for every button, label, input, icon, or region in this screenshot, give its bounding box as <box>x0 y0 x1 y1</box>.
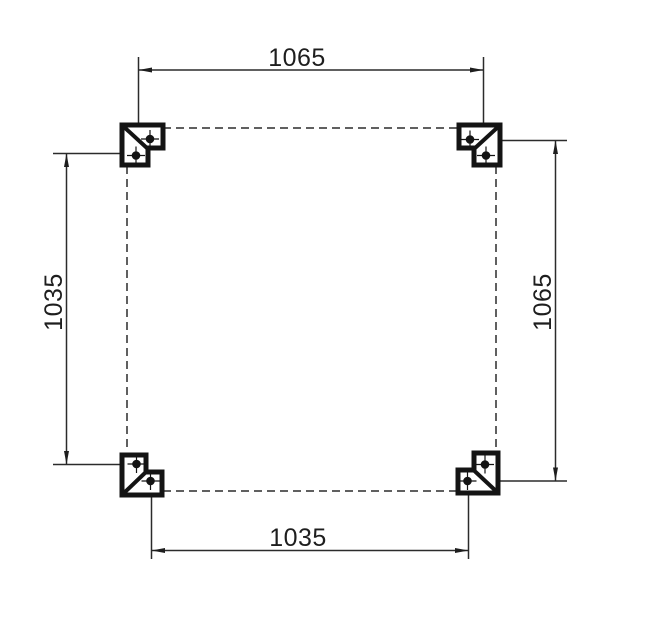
arrowhead-right <box>470 68 484 73</box>
corner-bracket-top-right <box>459 125 500 165</box>
technical-drawing-canvas: 1065 1035 1035 1065 <box>0 0 660 627</box>
arrowhead-right <box>455 548 469 553</box>
dimension-label-top: 1065 <box>268 44 326 72</box>
bolt-hole-icon <box>146 135 155 144</box>
arrowhead-bottom <box>64 451 69 465</box>
bolt-hole-icon <box>482 151 491 160</box>
dimension-top: 1065 <box>139 44 484 150</box>
dimension-plan-svg: 1065 1035 1035 1065 <box>0 0 660 627</box>
dimension-right: 1065 <box>480 141 567 482</box>
dimension-label-left: 1035 <box>40 273 68 331</box>
arrowhead-bottom <box>553 468 558 482</box>
frame-outline-dashed <box>127 128 496 491</box>
corner-bracket-top-left <box>122 125 163 165</box>
bolt-hole-icon <box>481 460 490 469</box>
arrowhead-left <box>152 548 166 553</box>
bolt-hole-icon <box>466 135 475 144</box>
dimension-label-right: 1065 <box>529 273 557 331</box>
dimension-left: 1035 <box>40 154 124 465</box>
bolt-hole-icon <box>146 477 155 486</box>
dimension-bottom: 1035 <box>152 493 469 559</box>
corner-bracket-bottom-right <box>458 453 498 493</box>
bolt-hole-icon <box>463 477 472 486</box>
bolt-hole-icon <box>132 151 141 160</box>
bolt-hole-icon <box>132 460 141 469</box>
arrowhead-top <box>553 141 558 155</box>
arrowhead-left <box>139 68 153 73</box>
dimension-label-bottom: 1035 <box>269 524 327 552</box>
arrowhead-top <box>64 154 69 168</box>
corner-bracket-bottom-left <box>122 455 162 495</box>
